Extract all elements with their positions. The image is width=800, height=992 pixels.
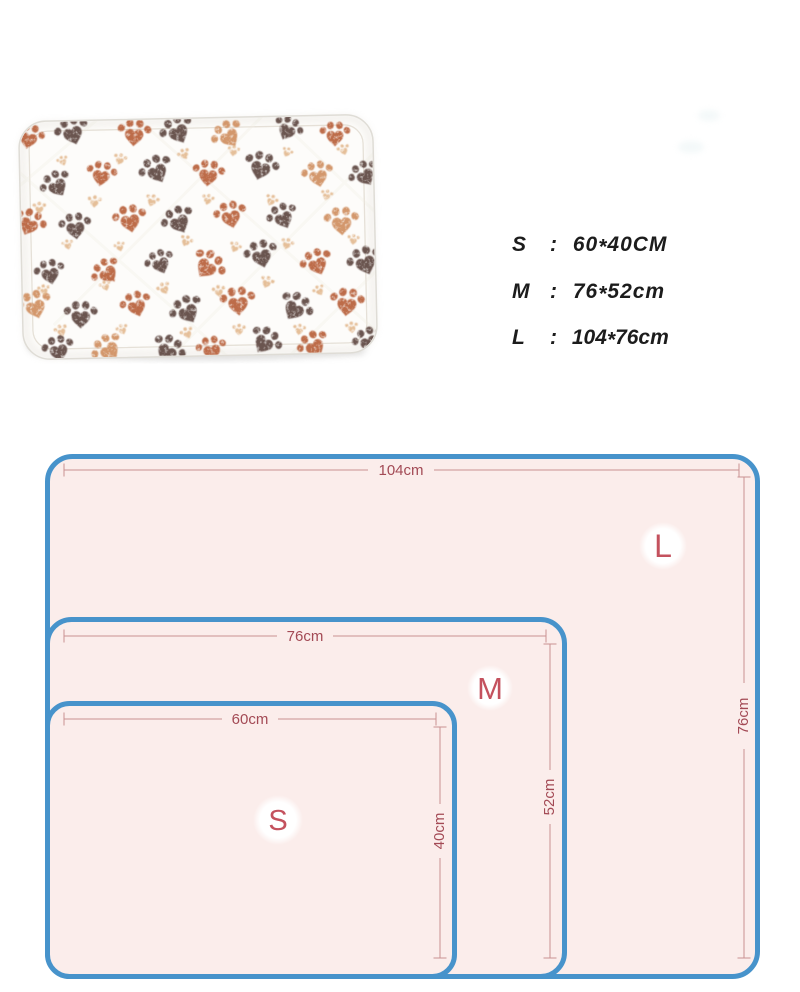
svg-text:52cm: 52cm [541, 779, 558, 816]
svg-text:76cm: 76cm [735, 698, 752, 735]
svg-text:60cm: 60cm [232, 711, 269, 728]
svg-text:L: L [654, 528, 672, 564]
svg-text:40cm: 40cm [431, 813, 448, 850]
svg-text:M: M [477, 671, 503, 706]
svg-text:104cm: 104cm [378, 462, 423, 479]
svg-text:76cm: 76cm [287, 628, 324, 645]
svg-text:S: S [268, 805, 287, 837]
